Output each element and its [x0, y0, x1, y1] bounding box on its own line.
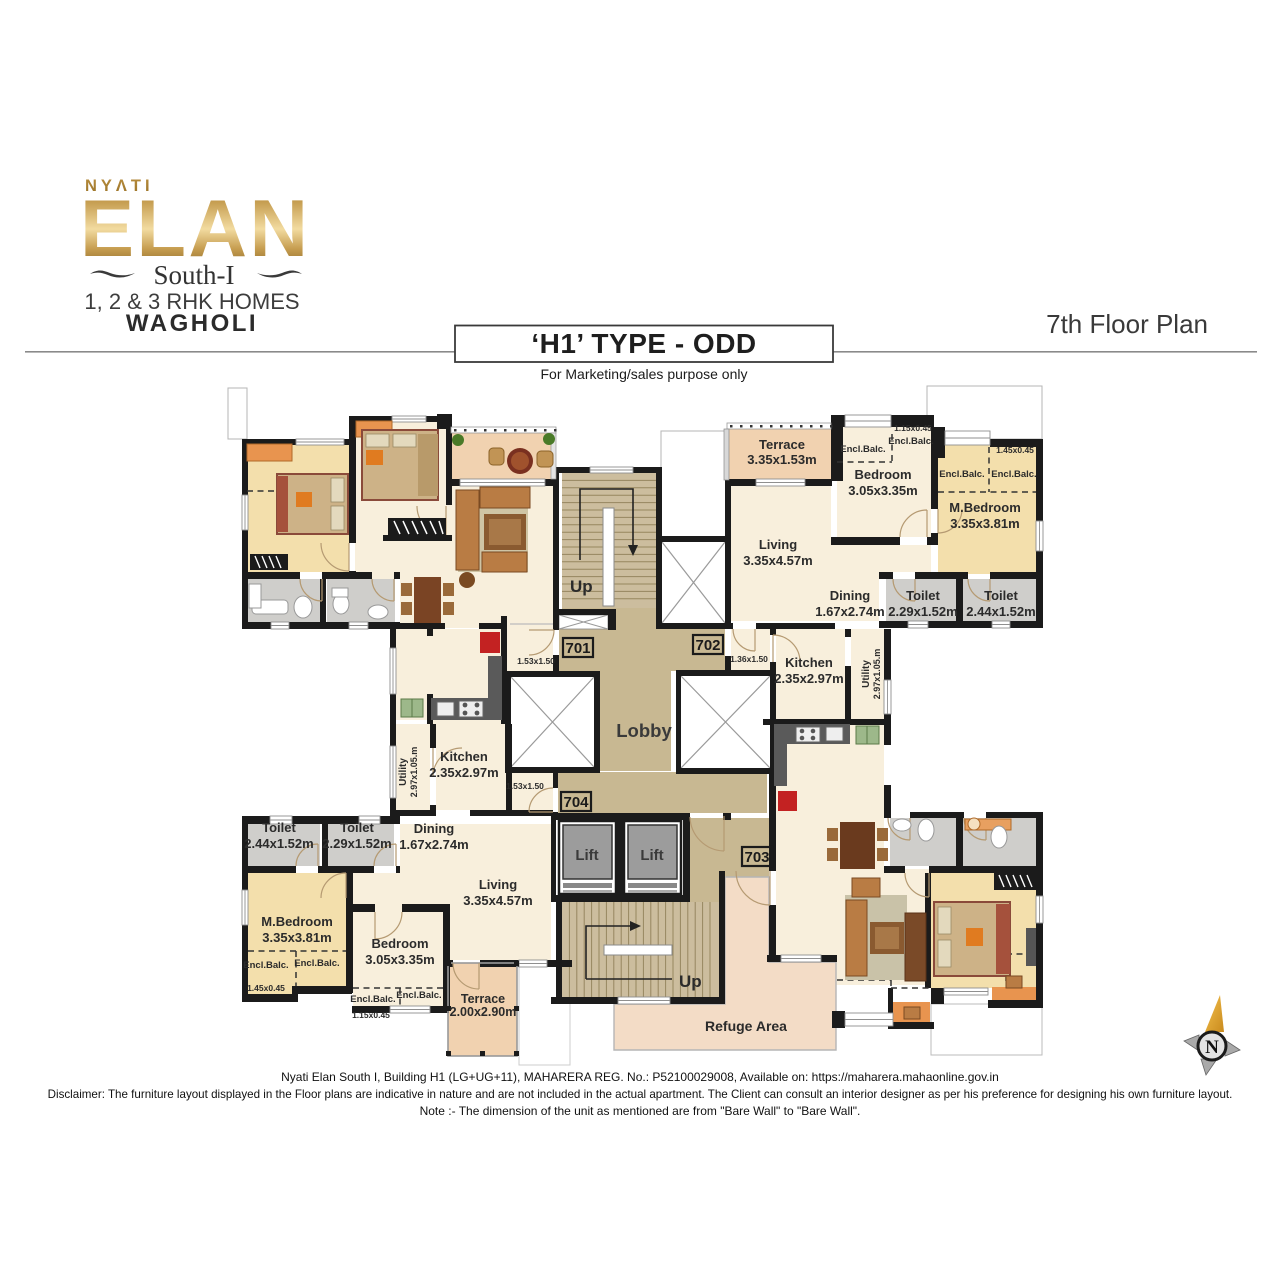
svg-text:N: N — [1205, 1037, 1219, 1058]
svg-text:Toilet: Toilet — [906, 588, 940, 603]
svg-text:Up: Up — [570, 577, 593, 596]
svg-text:Encl.Balc.: Encl.Balc. — [294, 958, 339, 969]
svg-text:2.97x1.05.m: 2.97x1.05.m — [409, 747, 419, 798]
svg-text:2.35x2.97m: 2.35x2.97m — [774, 671, 843, 686]
svg-text:2.97x1.05.m: 2.97x1.05.m — [872, 649, 882, 700]
svg-text:Toilet: Toilet — [262, 820, 296, 835]
svg-text:1.15x0.45: 1.15x0.45 — [894, 423, 932, 433]
svg-text:2.29x1.52m: 2.29x1.52m — [322, 836, 391, 851]
svg-text:7th Floor Plan: 7th Floor Plan — [1046, 309, 1208, 339]
svg-text:Encl.Balc.: Encl.Balc. — [939, 469, 984, 480]
svg-text:2.44x1.52m: 2.44x1.52m — [966, 604, 1035, 619]
svg-text:Encl.Balc.: Encl.Balc. — [243, 960, 288, 971]
svg-text:3.35x4.57m: 3.35x4.57m — [743, 553, 812, 568]
svg-text:3.05x3.35m: 3.05x3.35m — [848, 483, 917, 498]
svg-text:Lift: Lift — [640, 847, 663, 864]
svg-text:Refuge Area: Refuge Area — [705, 1018, 787, 1034]
svg-text:Living: Living — [759, 537, 797, 552]
svg-text:Encl.Balc.: Encl.Balc. — [840, 444, 885, 455]
svg-text:1.53x1.50: 1.53x1.50 — [506, 781, 544, 791]
svg-text:2.29x1.52m: 2.29x1.52m — [888, 604, 957, 619]
svg-text:Utility: Utility — [861, 660, 872, 688]
svg-text:2.00x2.90m: 2.00x2.90m — [450, 1005, 517, 1019]
svg-text:701: 701 — [565, 640, 590, 657]
svg-text:2.35x2.97m: 2.35x2.97m — [429, 765, 498, 780]
svg-text:Encl.Balc.: Encl.Balc. — [991, 469, 1036, 480]
svg-text:1.45x0.45: 1.45x0.45 — [996, 445, 1034, 455]
svg-text:Lift: Lift — [575, 847, 598, 864]
svg-text:Toilet: Toilet — [984, 588, 1018, 603]
svg-text:1.36x1.50: 1.36x1.50 — [730, 654, 768, 664]
svg-text:Encl.Balc.: Encl.Balc. — [396, 990, 441, 1001]
svg-text:Dining: Dining — [830, 588, 870, 603]
svg-text:3.35x3.81m: 3.35x3.81m — [262, 930, 331, 945]
svg-text:3.35x4.57m: 3.35x4.57m — [463, 893, 532, 908]
svg-text:M.Bedroom: M.Bedroom — [949, 500, 1021, 515]
svg-text:WAGHOLI: WAGHOLI — [126, 310, 258, 337]
svg-text:Utility: Utility — [398, 758, 409, 786]
svg-text:2.44x1.52m: 2.44x1.52m — [244, 836, 313, 851]
svg-text:Terrace: Terrace — [759, 437, 805, 452]
svg-text:3.05x3.35m: 3.05x3.35m — [365, 952, 434, 967]
svg-text:Terrace: Terrace — [461, 992, 505, 1006]
svg-text:703: 703 — [744, 849, 769, 866]
svg-text:3.35x1.53m: 3.35x1.53m — [747, 452, 816, 467]
svg-text:3.35x3.81m: 3.35x3.81m — [950, 516, 1019, 531]
svg-text:Kitchen: Kitchen — [440, 749, 488, 764]
svg-text:1.67x2.74m: 1.67x2.74m — [815, 604, 884, 619]
svg-text:For Marketing/sales purpose on: For Marketing/sales purpose only — [541, 366, 748, 382]
svg-text:‘H1’ TYPE - ODD: ‘H1’ TYPE - ODD — [531, 328, 756, 359]
svg-text:Lobby: Lobby — [616, 720, 672, 741]
svg-text:1.15x0.45: 1.15x0.45 — [352, 1010, 390, 1020]
svg-text:704: 704 — [563, 794, 589, 811]
svg-text:1.67x2.74m: 1.67x2.74m — [399, 837, 468, 852]
svg-text:1.45x0.45: 1.45x0.45 — [247, 983, 285, 993]
svg-text:Encl.Balc.: Encl.Balc. — [350, 994, 395, 1005]
svg-text:M.Bedroom: M.Bedroom — [261, 914, 333, 929]
svg-text:Bedroom: Bedroom — [371, 936, 428, 951]
svg-text:Living: Living — [479, 877, 517, 892]
svg-text:Toilet: Toilet — [340, 820, 374, 835]
svg-text:Dining: Dining — [414, 821, 454, 836]
svg-text:Encl.Balc.: Encl.Balc. — [888, 436, 933, 447]
svg-text:Kitchen: Kitchen — [785, 655, 833, 670]
svg-text:702: 702 — [695, 637, 720, 654]
svg-text:South-I: South-I — [154, 260, 235, 290]
svg-text:Up: Up — [679, 972, 702, 991]
svg-text:1.53x1.50: 1.53x1.50 — [517, 656, 555, 666]
svg-text:Bedroom: Bedroom — [854, 467, 911, 482]
